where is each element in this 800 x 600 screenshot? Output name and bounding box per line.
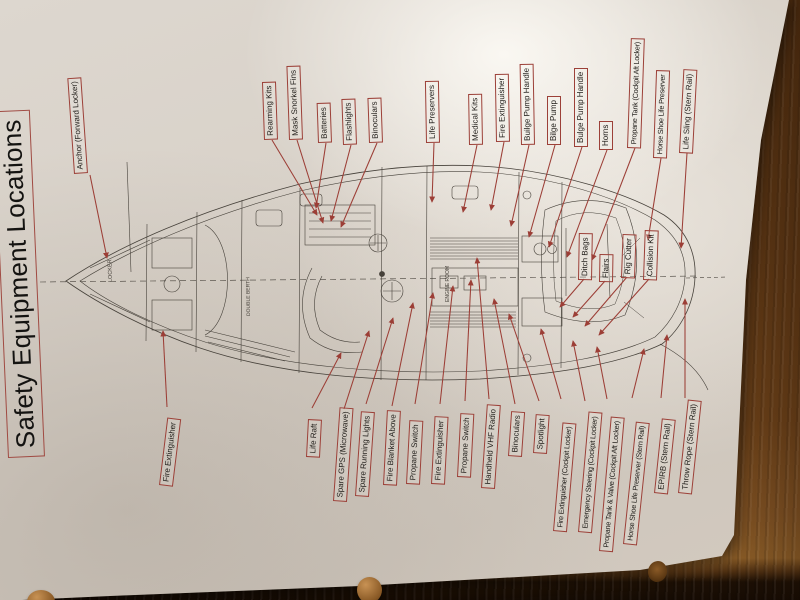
- callout-batteries: Batteries: [317, 103, 333, 143]
- callout-spotlight: Spotlight: [533, 414, 550, 454]
- callout-fire-extinguisher-top: Fire Extinguisher: [495, 74, 511, 142]
- callout-flashlights: Flashlights: [341, 98, 357, 145]
- photo-of-safety-diagram: LOCKER DOUBLE BERTH ENGINE ROOM: [0, 0, 800, 600]
- callout-builge-pump-handle: Builge Pump Handle: [520, 64, 536, 145]
- callout-bulge-pump-handle: Bulge Pump Handle: [574, 68, 588, 147]
- callout-rig-cutter: Rig Cutter: [621, 234, 637, 278]
- callout-bilge-pump: Bilge Pump: [547, 96, 561, 145]
- callout-ditch-bags: Ditch Bags: [578, 233, 593, 280]
- diagram-text-double-berth: DOUBLE BERTH: [245, 277, 252, 316]
- callout-rearming-kits: Rearming Kits: [262, 81, 278, 140]
- callout-life-raft: Life Raft: [306, 419, 322, 457]
- diagram-text-engine-room: ENGINE ROOM: [445, 266, 451, 302]
- wood-knob-middle: [357, 577, 382, 600]
- boat-deck-plan: LOCKER DOUBLE BERTH ENGINE ROOM: [0, 0, 800, 600]
- callout-collision-kit: Collision Kit: [643, 230, 659, 280]
- callout-horns: Horns: [599, 121, 613, 150]
- callout-medical-kits: Medical Kits: [468, 94, 483, 145]
- pointer-arrows: [90, 140, 687, 409]
- callout-flairs: Flairs: [599, 254, 614, 282]
- diagram-text-locker: LOCKER: [107, 259, 114, 282]
- callout-mask-snorkel-fins: Mask Snorkel Fins: [286, 66, 303, 140]
- callout-binoculars-top: Binoculars: [367, 97, 383, 143]
- callout-life-preservers: Life Preservers: [425, 81, 440, 143]
